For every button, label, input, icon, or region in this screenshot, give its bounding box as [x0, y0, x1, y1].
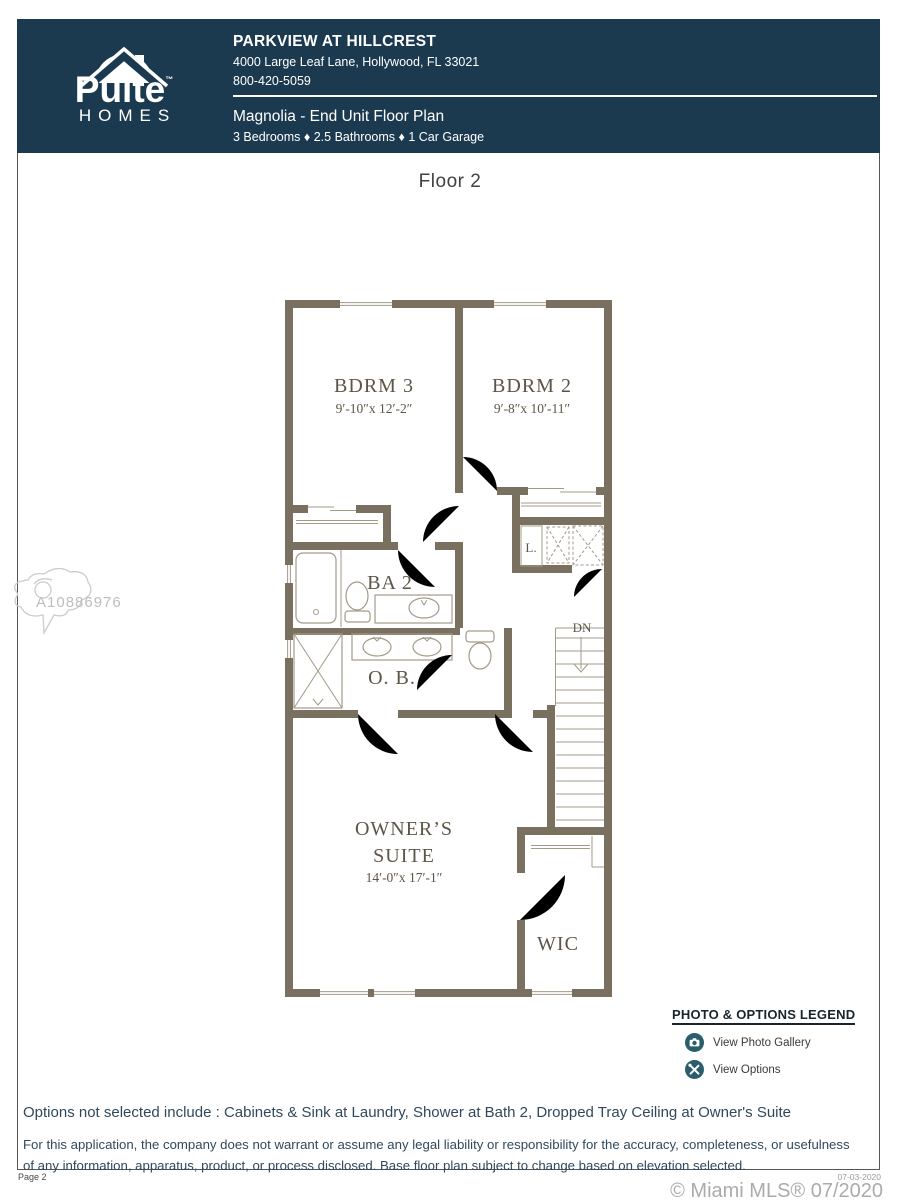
legend-title: PHOTO & OPTIONS LEGEND: [672, 1007, 855, 1025]
community-address: 4000 Large Leaf Lane, Hollywood, FL 3302…: [233, 55, 479, 69]
vanity-bath2: [375, 595, 452, 623]
tools-icon: [685, 1060, 704, 1079]
dims-bdrm2: 9′-8″x 10′-11″: [494, 401, 570, 416]
door-owners-suite-right: [495, 714, 533, 752]
floor-plan-page: Pulte™ HOMES PARKVIEW AT HILLCREST 4000 …: [0, 0, 909, 1200]
mls-credit: © Miami MLS® 07/2020: [670, 1180, 883, 1200]
floor-title: Floor 2: [280, 171, 620, 193]
disclaimer-text: For this application, the company does n…: [23, 1134, 855, 1176]
door-wic: [520, 875, 565, 920]
shower-owners-bath: [294, 634, 342, 708]
label-owners-suite-2: SUITE: [373, 845, 435, 867]
laundry-appliances: [547, 526, 603, 565]
logo-wordmark: Pulte™: [59, 69, 189, 111]
door-bdrm3: [423, 506, 459, 542]
photo-options-legend: PHOTO & OPTIONS LEGEND View Photo Galler…: [672, 1006, 877, 1079]
plan-specs: 3 Bedrooms ♦ 2.5 Bathrooms ♦ 1 Car Garag…: [233, 130, 484, 144]
logo-text-homes: HOMES: [59, 106, 189, 126]
options-not-selected-note: Options not selected include : Cabinets …: [23, 1104, 863, 1121]
mls-watermark: A10886976: [6, 568, 116, 653]
dims-owners-suite: 14′-0″x 17′-1″: [366, 870, 443, 885]
stairs: [556, 628, 605, 820]
header-divider: [233, 95, 877, 97]
label-bdrm3: BDRM 3: [334, 375, 414, 397]
page-number: Page 2: [18, 1172, 47, 1182]
watermark-mls-number: A10886976: [36, 594, 122, 611]
label-bdrm2: BDRM 2: [492, 375, 572, 397]
view-options-label: View Options: [713, 1064, 781, 1076]
view-options-link[interactable]: View Options: [685, 1060, 877, 1079]
community-phone: 800-420-5059: [233, 74, 311, 88]
door-bdrm2: [463, 457, 497, 491]
floor-plan-drawing: BDRM 3 9′-10″x 12′-2″ BDRM 2 9′-8″x 10′-…: [280, 293, 620, 1005]
camera-icon: [685, 1033, 704, 1052]
view-photo-gallery-link[interactable]: View Photo Gallery: [685, 1033, 877, 1052]
logo-text-pulte: Pulte: [75, 69, 165, 110]
door-owners-suite-left: [358, 714, 398, 754]
header: Pulte™ HOMES PARKVIEW AT HILLCREST 4000 …: [17, 19, 880, 153]
bath-fixtures: [294, 526, 603, 708]
label-stairs-dn: DN: [573, 620, 592, 635]
label-wic: WIC: [537, 933, 579, 955]
door-laundry: [574, 569, 602, 597]
dims-bdrm3: 9′-10″x 12′-2″: [336, 401, 413, 416]
toilet-owners-bath: [466, 631, 494, 669]
label-bath2: BA 2: [367, 572, 413, 594]
double-vanity-owners-bath: [352, 634, 452, 660]
pulte-homes-logo: Pulte™ HOMES: [59, 39, 189, 135]
label-owners-suite-1: OWNER’S: [355, 818, 453, 840]
view-photo-gallery-label: View Photo Gallery: [713, 1037, 811, 1049]
room-labels: BDRM 3 9′-10″x 12′-2″ BDRM 2 9′-8″x 10′-…: [334, 375, 592, 955]
plan-name: Magnolia - End Unit Floor Plan: [233, 108, 444, 126]
label-linen: L.: [525, 540, 536, 555]
bathtub: [296, 553, 336, 623]
trademark-symbol: ™: [165, 75, 173, 84]
label-owners-bath: O. B.: [368, 667, 416, 689]
community-name: PARKVIEW AT HILLCREST: [233, 33, 436, 51]
header-text: PARKVIEW AT HILLCREST 4000 Large Leaf La…: [233, 19, 878, 153]
